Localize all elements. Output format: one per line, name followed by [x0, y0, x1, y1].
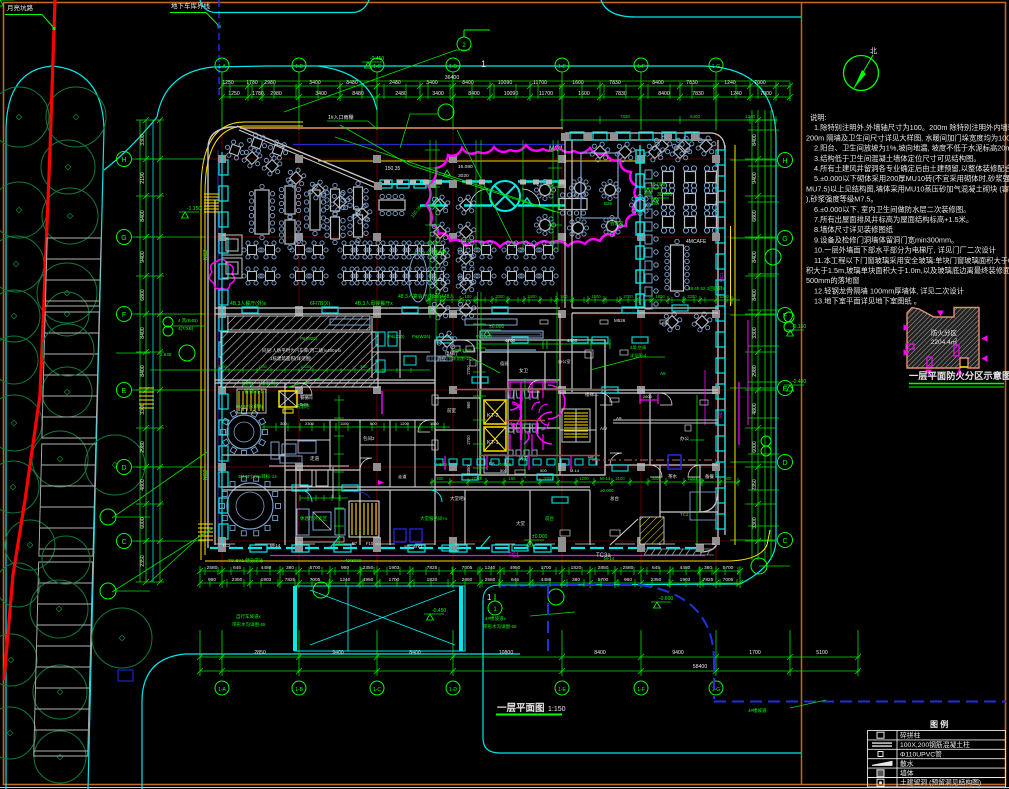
svg-text:B-M: B-M: [300, 402, 308, 407]
svg-text:7000: 7000: [760, 91, 772, 97]
svg-text:4(7/XB): 4(7/XB): [178, 326, 194, 331]
svg-text:1-E: 1-E: [558, 64, 566, 70]
svg-text:C: C: [782, 538, 787, 545]
svg-text:9400: 9400: [140, 251, 146, 263]
svg-text:1800: 1800: [655, 294, 665, 299]
svg-text:1-E: 1-E: [558, 687, 566, 693]
svg-text:包间2: 包间2: [363, 435, 375, 442]
svg-text:楼梯二: 楼梯二: [585, 391, 599, 398]
svg-text:2350: 2350: [752, 479, 758, 491]
svg-text:41.3h 62.回访转x: 41.3h 62.回访转x: [414, 249, 449, 256]
svg-text:≡TC-BY1: ≡TC-BY1: [404, 544, 423, 549]
svg-text:-0.150: -0.150: [792, 324, 806, 330]
svg-text:-1.150: -1.150: [187, 206, 201, 212]
svg-text:8400: 8400: [690, 114, 701, 119]
svg-text:1-F: 1-F: [637, 64, 645, 70]
svg-text:H: H: [121, 157, 126, 164]
svg-text:M-14: M-14: [604, 556, 615, 561]
svg-text:TC2: TC2: [680, 512, 689, 517]
svg-text:4B,3人餐厅(外)x: 4B,3人餐厅(外)x: [230, 300, 267, 307]
svg-text:4800: 4800: [752, 403, 758, 415]
svg-text:9.设备及检修门洞墙体留洞门宽min300mm。: 9.设备及检修门洞墙体留洞门宽min300mm。: [814, 235, 958, 244]
svg-text:8400: 8400: [658, 91, 670, 97]
svg-text:KT-1: KT-1: [487, 440, 499, 446]
svg-text:1903: 1903: [389, 565, 400, 571]
svg-text:2580: 2580: [207, 565, 218, 571]
svg-text:5700: 5700: [598, 577, 609, 583]
svg-text:960: 960: [208, 577, 216, 583]
svg-text:7825: 7825: [427, 565, 438, 571]
svg-text:3300: 3300: [140, 403, 146, 415]
svg-text:详见图-14: 详见图-14: [452, 355, 471, 362]
svg-text:10.一层外墙面下部水平部分为电梯厅, 详见门厂二次设计: 10.一层外墙面下部水平部分为电梯厅, 详见门厂二次设计: [814, 246, 996, 255]
svg-text:TC1: TC1: [508, 553, 520, 559]
svg-text:3300: 3300: [752, 517, 758, 529]
svg-text:5700: 5700: [310, 565, 321, 571]
svg-text:3300: 3300: [687, 294, 697, 299]
svg-text:散水: 散水: [900, 759, 914, 768]
svg-text:4460: 4460: [567, 338, 578, 344]
svg-text:900: 900: [437, 476, 445, 481]
svg-text:1240: 1240: [745, 114, 756, 119]
svg-text:1-C: 1-C: [373, 64, 381, 70]
svg-text:3400: 3400: [315, 91, 327, 97]
svg-text:1820: 1820: [427, 577, 438, 583]
svg-text:500: 500: [500, 468, 507, 473]
svg-text:-0.450: -0.450: [370, 56, 384, 62]
svg-text:NCZ: NCZ: [203, 470, 209, 480]
svg-text:大堂服务间+x: 大堂服务间+x: [420, 515, 448, 522]
svg-text:645: 645: [233, 565, 241, 571]
svg-text:1903: 1903: [261, 577, 272, 583]
svg-text:1240: 1240: [485, 565, 496, 571]
svg-text:一层平面图: 一层平面图: [497, 703, 545, 714]
svg-text:1700: 1700: [389, 577, 400, 583]
svg-text:1780: 1780: [252, 91, 264, 97]
svg-text:4800: 4800: [140, 479, 146, 491]
svg-text:1700: 1700: [749, 650, 761, 656]
svg-text:1-D: 1-D: [449, 687, 457, 693]
svg-text:2700: 2700: [466, 435, 471, 445]
svg-text:4MCAFE: 4MCAFE: [686, 239, 707, 245]
svg-text:2700: 2700: [466, 365, 471, 375]
svg-text:2480: 2480: [395, 91, 407, 97]
svg-text:值班: 值班: [500, 360, 508, 367]
svg-text:6000: 6000: [752, 441, 758, 453]
svg-text:380: 380: [704, 565, 712, 571]
svg-text:1200: 1200: [579, 476, 589, 481]
svg-text:7830: 7830: [615, 91, 627, 97]
svg-text:±0.000: ±0.000: [532, 534, 547, 540]
svg-text:6F/7B(X): 6F/7B(X): [310, 301, 330, 307]
svg-text:2100: 2100: [615, 476, 625, 481]
svg-text:2190: 2190: [140, 172, 146, 184]
svg-text:5100: 5100: [816, 650, 828, 656]
svg-text:M526: M526: [614, 318, 626, 323]
svg-text:B26: B26: [604, 201, 613, 206]
svg-text:8400: 8400: [468, 91, 480, 97]
svg-text:4用,空调: 4用,空调: [630, 344, 646, 351]
svg-text:150: 150: [509, 476, 517, 481]
svg-text:一层平面防火分区示意图: 一层平面防火分区示意图: [909, 370, 1009, 381]
svg-text:5M,5F(X)转标: 5M,5F(X)转标: [236, 403, 264, 410]
svg-text:办公: 办公: [680, 435, 689, 442]
svg-text:1820: 1820: [571, 565, 582, 571]
svg-text:5700: 5700: [723, 565, 734, 571]
svg-text:走道: 走道: [398, 473, 407, 480]
svg-text:8400: 8400: [140, 210, 146, 222]
svg-text:3300: 3300: [495, 294, 505, 299]
svg-text:3.结构低于卫生间混凝土墙体定位尺寸可见结构图。: 3.结构低于卫生间混凝土墙体定位尺寸可见结构图。: [814, 154, 981, 163]
svg-text:KT-2: KT-2: [487, 413, 499, 419]
svg-text:4480: 4480: [680, 565, 691, 571]
svg-text:详见图-4: 详见图-4: [630, 352, 647, 359]
svg-text:M-14: M-14: [270, 543, 281, 548]
svg-text:1.除特别注明外,外墙轴尺寸为100。200m 除特别注明外: 1.除特别注明外,外墙轴尺寸为100。200m 除特别注明外内墙轴尺寸为100。: [814, 123, 1009, 132]
svg-text:645: 645: [511, 577, 519, 583]
svg-text:150: 150: [465, 294, 473, 299]
svg-text:11700: 11700: [539, 91, 553, 97]
svg-text:500mm的落地窗: 500mm的落地窗: [806, 276, 860, 285]
svg-text:G: G: [782, 236, 787, 243]
svg-text:E: E: [122, 388, 127, 395]
svg-text:380: 380: [286, 565, 294, 571]
svg-text:900: 900: [561, 294, 569, 299]
svg-text:1: 1: [481, 59, 486, 69]
svg-text:8400: 8400: [752, 289, 758, 301]
svg-text:-0.450: -0.450: [792, 379, 806, 385]
svg-text:6.±0.000以下, 室内卫生间做防水层二次装修图。: 6.±0.000以下, 室内卫生间做防水层二次装修图。: [814, 205, 970, 214]
svg-text:3400: 3400: [432, 91, 444, 97]
svg-text:150,35: 150,35: [458, 238, 472, 243]
svg-text:4B,3人母婴餐厅x: 4B,3人母婴餐厅x: [355, 300, 393, 307]
svg-text:4.所有土建风井留洞各专业确定后由土建预留,以整体装修配合手: 4.所有土建风井留洞各专业确定后由土建预留,以整体装修配合手.: [814, 164, 1009, 173]
svg-text:2.阳台、卫生间放坡为1%,坡向地漏, 坡度不低于水泥标高2: 2.阳台、卫生间放坡为1%,坡向地漏, 坡度不低于水泥标高20mm: [814, 144, 1009, 153]
svg-text:休息厅外卖区: 休息厅外卖区: [300, 515, 327, 522]
svg-text:100X,200钢筋混凝土柱: 100X,200钢筋混凝土柱: [900, 740, 970, 749]
svg-text:前室: 前室: [447, 407, 456, 414]
svg-text:茶水: 茶水: [668, 473, 677, 479]
svg-text:图 例: 图 例: [930, 719, 948, 729]
svg-text:A/V: A/V: [600, 426, 607, 431]
svg-text:F10: F10: [366, 541, 374, 546]
svg-text:1-G: 1-G: [712, 64, 720, 70]
svg-text:4700: 4700: [505, 338, 516, 344]
svg-text:1.638: 1.638: [160, 352, 172, 357]
svg-text:备餐: 备餐: [705, 473, 714, 480]
svg-text:8400: 8400: [752, 251, 758, 263]
svg-text:2300: 2300: [305, 421, 315, 426]
svg-text:8400: 8400: [140, 327, 146, 339]
svg-text:MC1: MC1: [719, 272, 724, 282]
svg-text:2980: 2980: [140, 441, 146, 453]
svg-text:2980: 2980: [270, 91, 282, 97]
svg-text:P&(W26): P&(W26): [412, 334, 431, 339]
svg-text:15.080: 15.080: [458, 164, 473, 170]
svg-text:7.所有出屋面排风井标高为屋面结构标高+1.5米。: 7.所有出屋面排风井标高为屋面结构标高+1.5米。: [814, 215, 973, 224]
svg-text:2350: 2350: [140, 555, 146, 567]
svg-text:积大于1.5m,玻璃单块面积大于1.0m,以及玻璃底边离最终: 积大于1.5m,玻璃单块面积大于1.0m,以及玻璃底边离最终装修面高度小于: [806, 266, 1009, 275]
svg-text:6800: 6800: [752, 210, 758, 222]
svg-text:Φ110UPVC管: Φ110UPVC管: [900, 750, 942, 759]
svg-text:8400: 8400: [594, 650, 606, 656]
svg-text:18.000: 18.000: [650, 182, 666, 188]
svg-text:F: F: [122, 312, 126, 319]
svg-text:TC2: TC2: [222, 543, 231, 548]
svg-text:2350: 2350: [363, 565, 374, 571]
svg-text:1核建筑面积(详见图): 1核建筑面积(详见图): [270, 355, 312, 362]
svg-text:30.600: 30.600: [657, 192, 673, 198]
svg-text:2980: 2980: [752, 365, 758, 377]
svg-text:1100: 1100: [340, 421, 349, 426]
svg-text:1-D: 1-D: [449, 64, 457, 70]
svg-text:2850: 2850: [598, 565, 609, 571]
svg-text:同层:人防平时为汽车库(丙二级)x480㎡x: 同层:人防平时为汽车库(丙二级)x480㎡x: [262, 347, 342, 354]
svg-text:1-A: 1-A: [218, 687, 226, 693]
svg-text:2580: 2580: [623, 565, 634, 571]
svg-text:3M,5F(X)xx转标-14: 3M,5F(X)xx转标-14: [238, 473, 277, 480]
svg-text:3800: 3800: [218, 364, 228, 369]
svg-text:13.地下室平面详见地下室图纸 。: 13.地下室平面详见地下室图纸 。: [814, 297, 921, 306]
svg-text:300: 300: [280, 421, 287, 426]
svg-text:大堂吧x: 大堂吧x: [450, 495, 466, 502]
svg-text:1/2F(X)XX: 1/2F(X)XX: [452, 348, 472, 353]
svg-text:土建留洞 (预留洞见结构图): 土建留洞 (预留洞见结构图): [900, 778, 981, 787]
svg-text:D: D: [782, 460, 787, 467]
svg-text:1-A: 1-A: [218, 64, 226, 70]
svg-text:4#楼坡道x: 4#楼坡道x: [485, 615, 507, 622]
svg-text:4950: 4950: [363, 577, 374, 583]
svg-text:A9: A9: [660, 371, 666, 376]
svg-text:P&(W20): P&(W20): [300, 336, 318, 341]
svg-text:1#入口雨棚: 1#入口雨棚: [328, 114, 354, 121]
svg-text:300: 300: [360, 364, 367, 369]
svg-text:200m 隔墙及卫生间尺寸详见大样图, 水暖间加门垛宽度均为: 200m 隔墙及卫生间尺寸详见大样图, 水暖间加门垛宽度均为100。: [806, 133, 1009, 142]
svg-text:),砂浆强度等级M7.5。: ),砂浆强度等级M7.5。: [806, 195, 878, 204]
svg-text:-0.600: -0.600: [659, 596, 673, 602]
svg-text:58400: 58400: [693, 664, 708, 670]
svg-text:自行车坡道x: 自行车坡道x: [236, 613, 261, 620]
svg-text:3300: 3300: [752, 327, 758, 339]
svg-text:D: D: [121, 465, 126, 472]
svg-text:1700: 1700: [541, 565, 552, 571]
svg-text:B9: B9: [588, 454, 594, 459]
svg-text:4#楼坡道: 4#楼坡道: [748, 707, 767, 714]
svg-text:11.本工程以下门窗玻璃采用安全玻璃:单块门窗玻璃面积大于0: 11.本工程以下门窗玻璃采用安全玻璃:单块门窗玻璃面积大于0.5m,离地: [814, 256, 1009, 265]
svg-text:走道: 走道: [310, 455, 319, 462]
svg-text:月亮坑路: 月亮坑路: [7, 3, 34, 12]
svg-text:7830: 7830: [692, 91, 704, 97]
svg-text:墙体: 墙体: [900, 768, 914, 777]
svg-text:会议室: 会议室: [610, 220, 624, 227]
svg-text:1-B: 1-B: [295, 64, 303, 70]
svg-text:1-C: 1-C: [373, 687, 381, 693]
svg-text:48.4h 62.1回访转x: 48.4h 62.1回访转x: [688, 285, 726, 292]
svg-text:C: C: [121, 539, 126, 546]
svg-text:6800: 6800: [140, 289, 146, 301]
svg-text:碎拼柱: 碎拼柱: [900, 731, 921, 740]
svg-text:2350: 2350: [466, 465, 471, 475]
svg-text:9400: 9400: [672, 650, 684, 656]
svg-text:1500: 1500: [591, 294, 601, 299]
svg-text:2700: 2700: [623, 294, 633, 299]
svg-text:10800: 10800: [499, 650, 514, 656]
svg-text:2850: 2850: [254, 650, 266, 656]
svg-text:NCZ: NCZ: [203, 250, 209, 260]
svg-text:B7: B7: [352, 541, 358, 546]
svg-text:1-B: 1-B: [295, 687, 303, 693]
svg-text:办公室: 办公室: [558, 358, 571, 365]
svg-text:1600: 1600: [578, 91, 590, 97]
svg-text:10080: 10080: [300, 364, 312, 369]
svg-text:2204.4㎡: 2204.4㎡: [931, 337, 958, 346]
svg-text:960: 960: [466, 401, 471, 409]
svg-text:1500: 1500: [430, 421, 440, 426]
svg-text:2600: 2600: [643, 394, 653, 399]
svg-text:女卫: 女卫: [519, 367, 528, 374]
svg-text:1-F: 1-F: [637, 687, 645, 693]
svg-text:900: 900: [725, 476, 733, 481]
svg-text:8.墙体尺寸详见装修图纸: 8.墙体尺寸详见装修图纸: [814, 225, 894, 234]
svg-text:7005: 7005: [723, 577, 734, 583]
svg-text:MU7.5)以上见结构图,墙体采用MU10蒸压砂加气混凝土砌: MU7.5)以上见结构图,墙体采用MU10蒸压砂加气混凝土砌块 (容重<12kN…: [806, 184, 1009, 193]
svg-text:4950: 4950: [510, 565, 521, 571]
svg-text:7005: 7005: [462, 565, 473, 571]
svg-text:前台: 前台: [545, 515, 554, 522]
svg-text:大堂: 大堂: [516, 520, 525, 527]
svg-text:2580: 2580: [485, 577, 496, 583]
svg-text:说明:: 说明:: [810, 113, 827, 122]
svg-text:1:150: 1:150: [548, 706, 566, 713]
svg-text:8400: 8400: [140, 365, 146, 377]
svg-text:G: G: [121, 235, 126, 242]
svg-text:总台: 总台: [610, 495, 619, 502]
svg-text:6000: 6000: [140, 517, 146, 529]
svg-text:380: 380: [572, 577, 580, 583]
svg-text:12.轻钢龙骨隔墙 100mm厚墙体, 详见二次设计: 12.轻钢龙骨隔墙 100mm厚墙体, 详见二次设计: [814, 286, 964, 295]
svg-text:防火分区: 防火分区: [931, 328, 958, 337]
svg-text:1300: 1300: [719, 294, 729, 299]
svg-text:48.3人宴会厅(包间)448人: 48.3人宴会厅(包间)448人: [398, 293, 454, 300]
svg-text:500: 500: [540, 468, 547, 473]
svg-text:49/8000: 49/8000: [345, 558, 362, 563]
svg-text:2350: 2350: [232, 577, 243, 583]
svg-text:带形水沟详图-55: 带形水沟详图-55: [232, 621, 266, 628]
svg-text:9400: 9400: [752, 172, 758, 184]
svg-text:36400: 36400: [445, 75, 460, 81]
svg-text:645: 645: [652, 565, 660, 571]
svg-text:-0.450: -0.450: [432, 608, 446, 614]
svg-text:8400: 8400: [752, 134, 758, 146]
svg-text:H: H: [782, 158, 787, 165]
svg-text:5.±0.000以下砌体采用200厚MU10砖(不宜采用砌体: 5.±0.000以下砌体采用200厚MU10砖(不宜采用砌体时,砂浆强度等级为: [814, 174, 1009, 183]
svg-text:1200: 1200: [400, 421, 410, 426]
svg-text:MC1: MC1: [718, 408, 723, 418]
svg-text:150.35: 150.35: [385, 166, 401, 172]
svg-text:3300: 3300: [140, 134, 146, 146]
svg-text:3020: 3020: [458, 173, 469, 179]
svg-text:600: 600: [370, 421, 377, 426]
svg-text:±0.000: ±0.000: [600, 488, 614, 493]
svg-text:1240: 1240: [258, 364, 268, 369]
svg-text:1903: 1903: [680, 577, 691, 583]
svg-text:M-14: M-14: [600, 476, 611, 481]
svg-text:7825: 7825: [285, 577, 296, 583]
svg-text:1240: 1240: [340, 577, 351, 583]
svg-text:1: 1: [487, 593, 492, 602]
svg-text:7830: 7830: [620, 114, 631, 119]
svg-text:7825: 7825: [703, 577, 714, 583]
svg-text:带形水沟详图-55: 带形水沟详图-55: [483, 623, 517, 630]
svg-text:北: 北: [870, 47, 877, 55]
svg-text:960: 960: [624, 577, 632, 583]
svg-text:2850: 2850: [462, 577, 473, 583]
svg-text:M-14: M-14: [570, 468, 580, 473]
svg-text:TC-BY1 健身游泳: TC-BY1 健身游泳: [228, 557, 264, 564]
